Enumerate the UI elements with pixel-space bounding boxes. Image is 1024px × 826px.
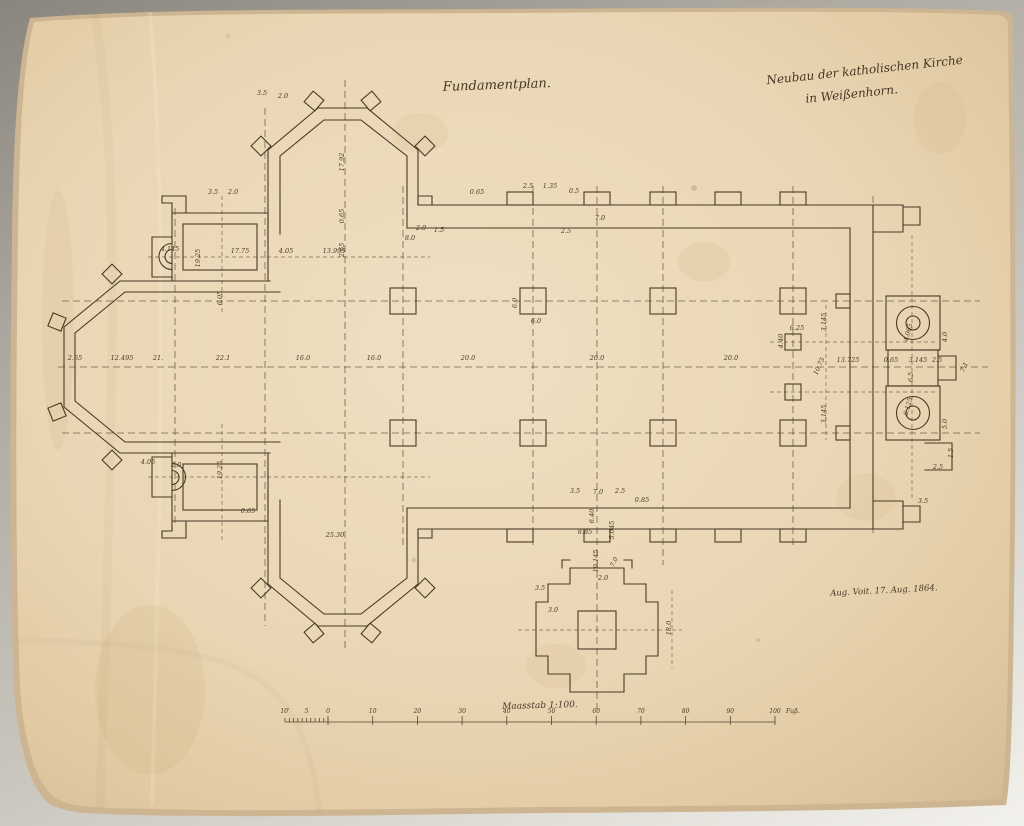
dimension-label: 2.5 xyxy=(614,487,625,495)
dimension-label: 0.65 xyxy=(884,356,898,364)
dimension-label: 10.145 xyxy=(592,550,600,573)
dimension-label: 4.05 xyxy=(278,247,293,255)
dimension-label: 7.0 xyxy=(593,488,603,496)
dimension-label: 16.0 xyxy=(296,354,310,362)
dimension-label: 4.40 xyxy=(777,334,785,349)
scale-tick-label: 10' xyxy=(280,708,290,715)
dimension-label: 0.65 xyxy=(338,209,346,223)
foundation-plan-drawing: 2.6512.49521.22.116.016.020.020.020.010.… xyxy=(0,0,1024,826)
dimension-label: 17.75 xyxy=(231,247,250,255)
dimension-label: 12.495 xyxy=(111,354,134,362)
dimension-label: 19.25 xyxy=(194,249,202,268)
dimension-label: 6.05 xyxy=(216,291,224,305)
dimension-label: 21. xyxy=(152,354,163,362)
scale-tick-label: 80 xyxy=(682,708,690,715)
dimension-label: 6.5 xyxy=(907,372,915,382)
dimension-label: 3.5 xyxy=(570,487,580,495)
dimension-label: 19.25 xyxy=(216,461,224,480)
dimension-label: 3.145 xyxy=(820,405,828,424)
dimension-label: 6.0 xyxy=(511,298,519,308)
dimension-label: 3.5 xyxy=(535,584,545,592)
dimension-label: 0.5 xyxy=(569,187,579,195)
dimension-label: 2.5 xyxy=(931,356,942,364)
dimension-label: 0.85 xyxy=(635,496,649,504)
dimension-label: 4.05 xyxy=(140,458,155,466)
dimension-label: 8.0 xyxy=(405,234,415,242)
dimension-label: 3.145 xyxy=(820,313,828,332)
dimension-label: 20.0 xyxy=(589,354,604,362)
dimension-label: 3.5 xyxy=(918,497,928,505)
dimension-label: 18.0 xyxy=(665,621,673,635)
dimension-label: 17.92 xyxy=(338,153,346,172)
dimension-label: 3.145 xyxy=(909,356,928,364)
dimension-label: 6.0 xyxy=(531,317,541,325)
scale-tick-label: 90 xyxy=(726,708,734,715)
scale-tick-label: 70 xyxy=(637,708,645,715)
scale-tick-label: 10 xyxy=(369,708,377,715)
scale-tick-label: 20 xyxy=(413,708,422,715)
dimension-label: 2.0 xyxy=(227,188,238,196)
dimension-label: 25.30 xyxy=(325,531,345,539)
dimension-label: 5.045 xyxy=(608,521,616,540)
dimension-label: 0.65 xyxy=(470,188,484,196)
scale-tick-label: 5 xyxy=(305,708,309,715)
dimension-label: 2.5 xyxy=(932,463,943,471)
dimension-label: 2.0 xyxy=(277,92,288,100)
dimension-label: 2.5 xyxy=(522,182,533,190)
dimension-label: 22.1 xyxy=(215,354,230,362)
dimension-label: 6.25 xyxy=(790,324,804,332)
dimension-label: 3.0 xyxy=(548,606,558,614)
dimension-label: 2.65 xyxy=(338,243,346,258)
dimension-label: 5.0 xyxy=(941,419,949,429)
dimension-label: 20.0 xyxy=(723,354,738,362)
dimension-label: 2.65 xyxy=(67,354,82,362)
scale-tick-label: 30 xyxy=(458,708,466,715)
dimension-label: 2.5 xyxy=(560,227,571,235)
scale-tick-label: 100 xyxy=(769,708,781,715)
dimension-label: 4.0 xyxy=(941,332,949,343)
scale-unit-label: Fuß. xyxy=(785,708,800,715)
paper-sheet xyxy=(10,8,1015,816)
dimension-label: 20.0 xyxy=(460,354,475,362)
scale-tick-label: 60 xyxy=(592,708,600,715)
dimension-label: 6.40 xyxy=(588,509,596,523)
dimension-label: 0.65 xyxy=(241,507,255,515)
dimension-label: 2.0 xyxy=(415,224,426,232)
dimension-label: 3.5 xyxy=(257,89,267,97)
dimension-label: 2.0 xyxy=(170,461,181,469)
dimension-label: 1.5 xyxy=(947,448,955,458)
dimension-label: 1.5 xyxy=(434,226,444,234)
dimension-label: 7.0 xyxy=(595,214,605,222)
dimension-label: 16.0 xyxy=(367,354,381,362)
dimension-label: 4.145 xyxy=(160,245,180,253)
scanned-drawing-page: 2.6512.49521.22.116.016.020.020.020.010.… xyxy=(0,0,1024,826)
dimension-label: 13.725 xyxy=(837,356,860,364)
scale-bar-label: Maasstab 1:100. xyxy=(501,700,578,712)
scale-tick-label: 0 xyxy=(326,708,330,715)
dimension-label: 1.35 xyxy=(543,182,557,190)
dimension-label: 2.0 xyxy=(597,574,608,582)
dimension-label: 8.85 xyxy=(578,528,592,536)
dimension-label: 3.5 xyxy=(208,188,218,196)
